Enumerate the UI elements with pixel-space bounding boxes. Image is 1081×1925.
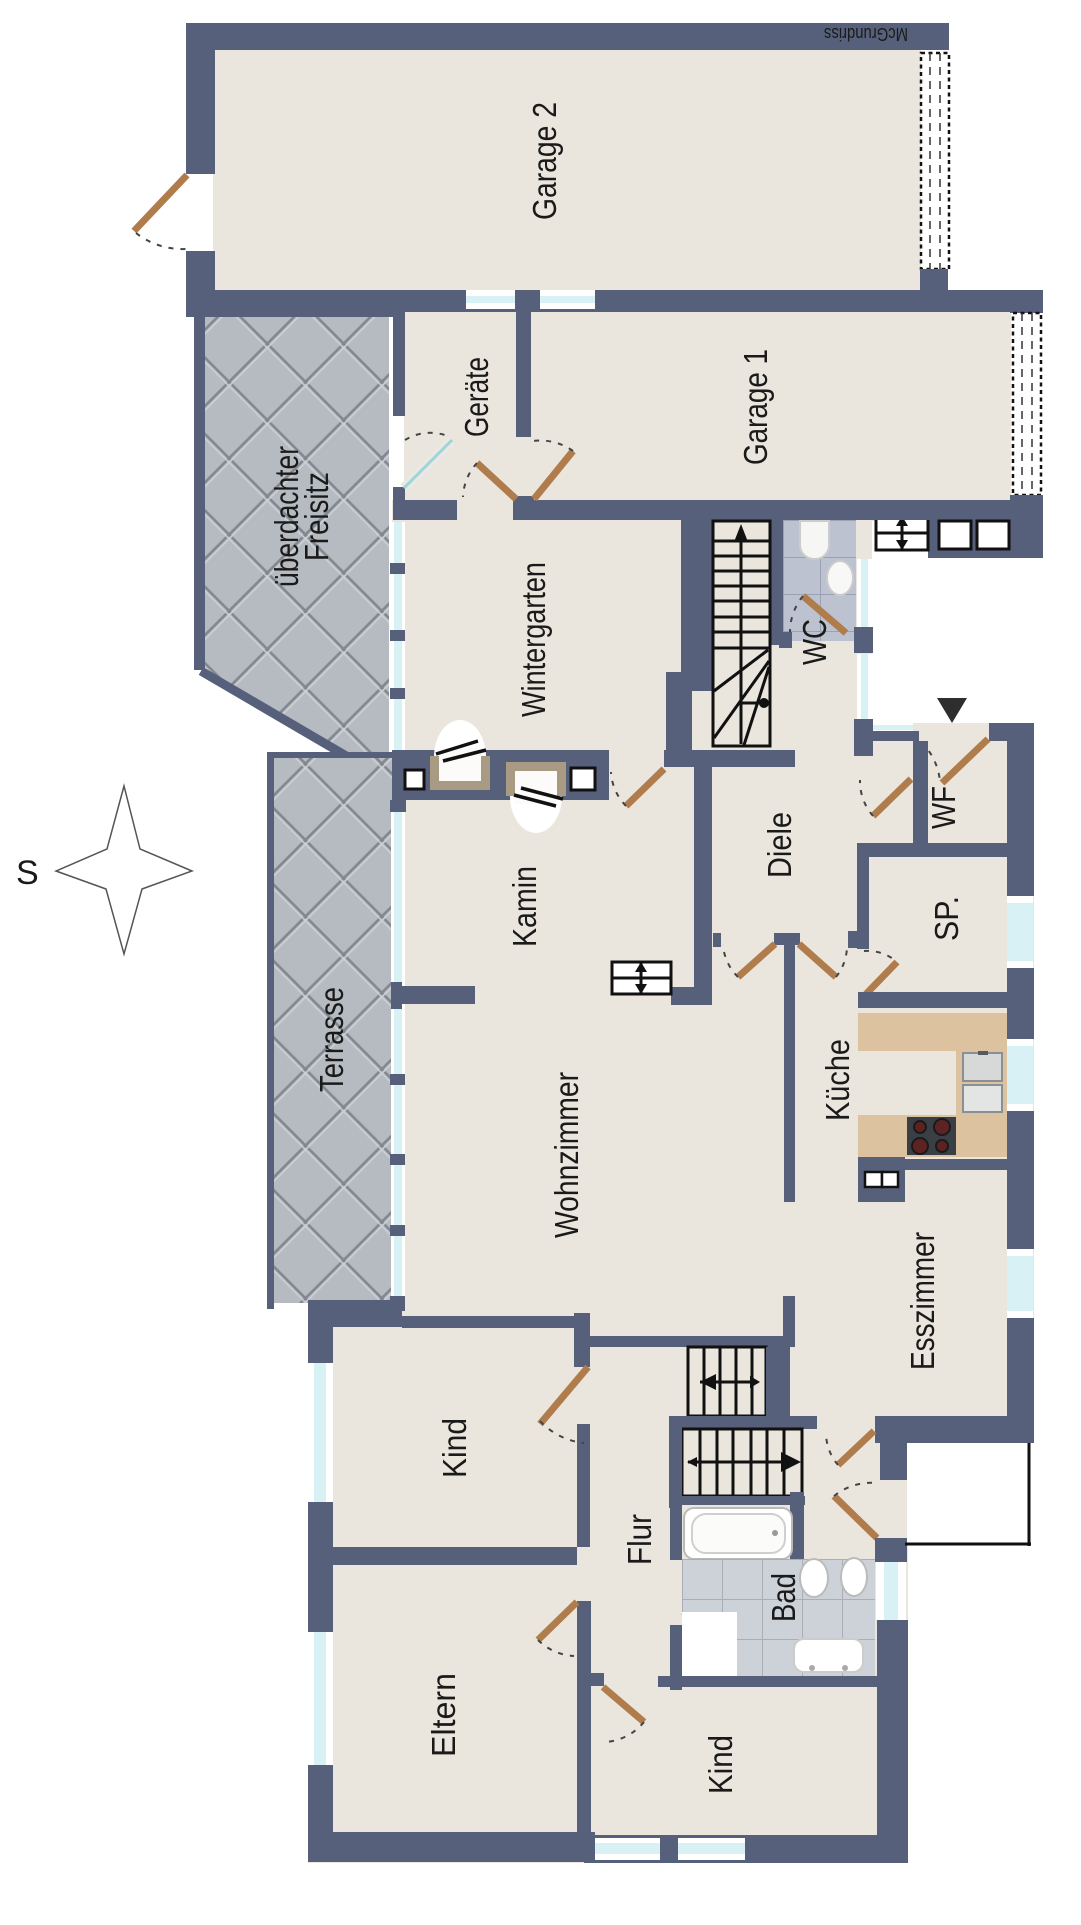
svg-text:Garage 1: Garage 1 bbox=[737, 349, 774, 465]
svg-text:Kind: Kind bbox=[436, 1418, 473, 1478]
svg-text:Geräte: Geräte bbox=[458, 357, 495, 437]
svg-text:Küche: Küche bbox=[819, 1039, 856, 1121]
svg-text:Kind: Kind bbox=[702, 1735, 739, 1794]
svg-text:Wohnzimmer: Wohnzimmer bbox=[548, 1072, 585, 1238]
svg-text:S: S bbox=[16, 854, 39, 892]
svg-text:Bad: Bad bbox=[765, 1573, 802, 1622]
svg-text:Terrasse: Terrasse bbox=[313, 987, 350, 1092]
svg-text:WF: WF bbox=[925, 786, 962, 829]
svg-text:Wintergarten: Wintergarten bbox=[515, 562, 552, 717]
svg-text:Diele: Diele bbox=[761, 812, 798, 878]
svg-text:Garage 2: Garage 2 bbox=[526, 102, 563, 220]
svg-text:SP.: SP. bbox=[928, 896, 965, 941]
svg-text:McGrundriss: McGrundriss bbox=[824, 24, 908, 44]
svg-text:Eltern: Eltern bbox=[425, 1673, 462, 1757]
svg-text:Freisitz: Freisitz bbox=[298, 472, 335, 561]
svg-text:Flur: Flur bbox=[621, 1514, 658, 1565]
svg-text:Esszimmer: Esszimmer bbox=[904, 1232, 941, 1370]
svg-text:Kamin: Kamin bbox=[506, 866, 543, 947]
svg-text:WC: WC bbox=[796, 619, 833, 665]
